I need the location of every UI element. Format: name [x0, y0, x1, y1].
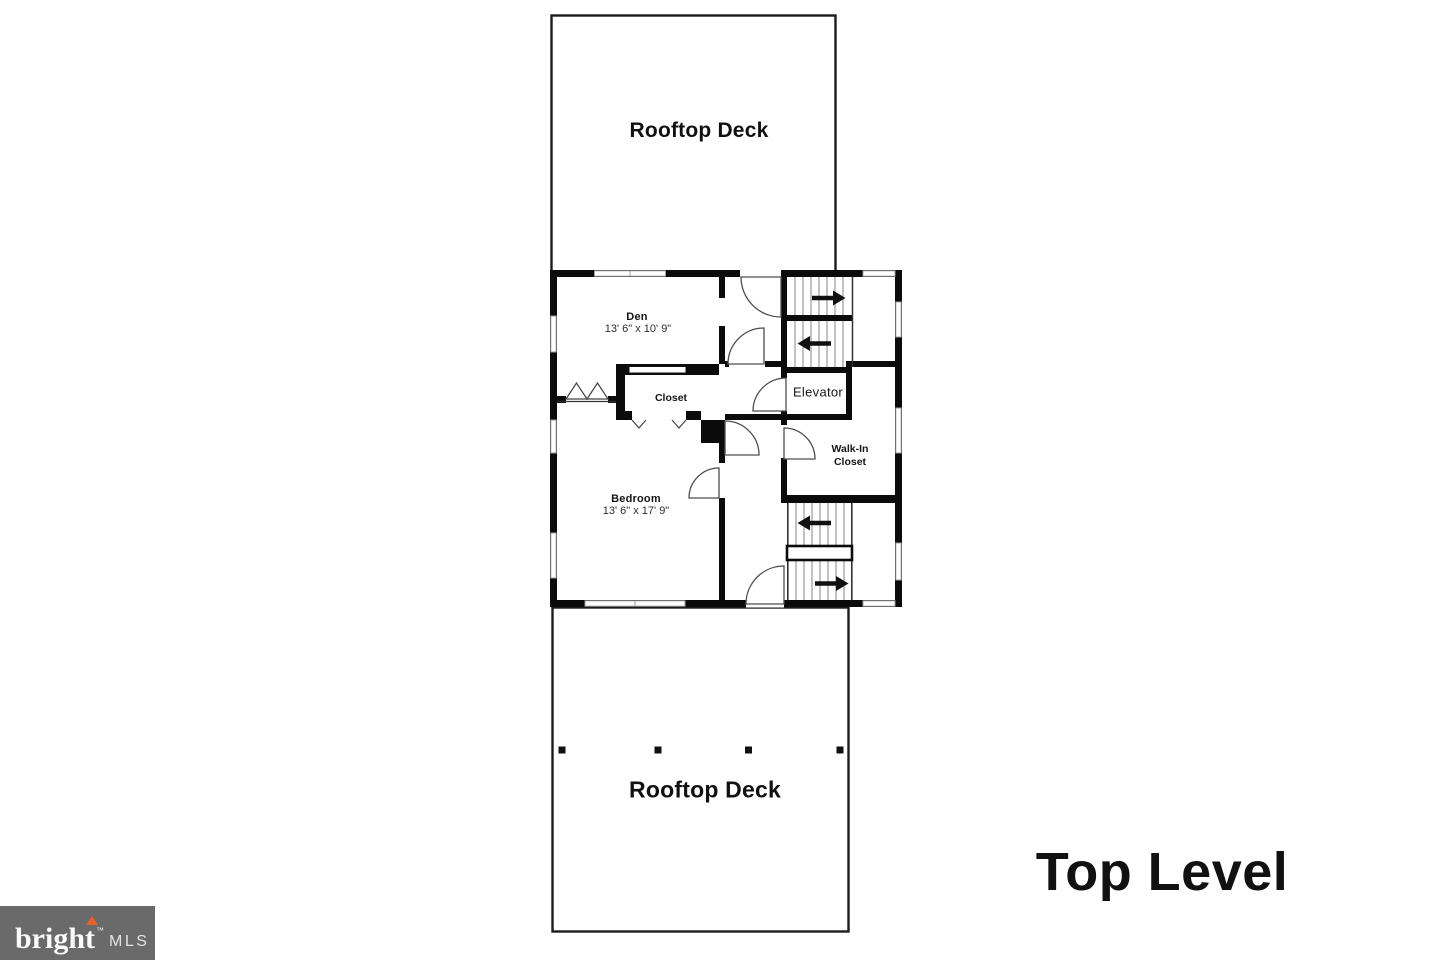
level-title: Top Level — [1036, 841, 1289, 903]
walk-in-line2: Closet — [832, 456, 869, 469]
walk-in-line1: Walk-In — [832, 443, 869, 456]
den-label: Den — [626, 311, 647, 323]
stairs-lower — [787, 503, 852, 600]
hall-door-arc — [728, 328, 764, 364]
bedroom-dimensions: 13' 6" x 17' 9" — [603, 505, 669, 517]
closet-door-marks — [632, 420, 686, 428]
brightmls-wordmark: bright — [15, 925, 95, 953]
stairs-up-arrow-icon — [812, 291, 846, 306]
closet-header-opening — [629, 367, 686, 374]
brightmls-arrow-icon — [86, 916, 98, 925]
mls-label: MLS — [109, 933, 149, 951]
elevator-label: Elevator — [793, 385, 843, 400]
stairs-upper — [795, 277, 853, 367]
deck-door-arc — [741, 277, 781, 317]
bedroom-label: Bedroom — [611, 493, 661, 505]
rooftop-deck-top-label: Rooftop Deck — [630, 119, 769, 143]
hall-lower-door-arc — [725, 421, 759, 455]
closet-label: Closet — [655, 392, 687, 404]
rooftop-deck-bottom-label: Rooftop Deck — [629, 777, 781, 804]
walkin-door-arc — [784, 428, 815, 459]
elevator-door-arc — [753, 378, 786, 411]
trademark-symbol: ™ — [96, 926, 104, 935]
stairs-up-arrow-icon — [798, 516, 832, 531]
floor-plan-page: Rooftop Deck Den 13' 6" x 10' 9" Closet … — [0, 0, 1440, 960]
stair-landing — [787, 546, 852, 560]
deck-lower-door-arc — [746, 566, 784, 604]
floor-plan-drawing — [0, 0, 1440, 960]
bifold-door-icon — [557, 383, 616, 402]
walk-in-closet-label: Walk-In Closet — [832, 443, 869, 469]
rooftop-deck-top-outline — [552, 16, 836, 273]
brightmls-logo: bright ™ MLS — [0, 906, 155, 960]
den-dimensions: 13' 6" x 10' 9" — [605, 323, 671, 335]
bedroom-door-arc — [689, 468, 719, 498]
rooftop-deck-bottom-outline — [553, 608, 849, 932]
brightmls-logo-inner: bright ™ MLS — [0, 906, 155, 960]
